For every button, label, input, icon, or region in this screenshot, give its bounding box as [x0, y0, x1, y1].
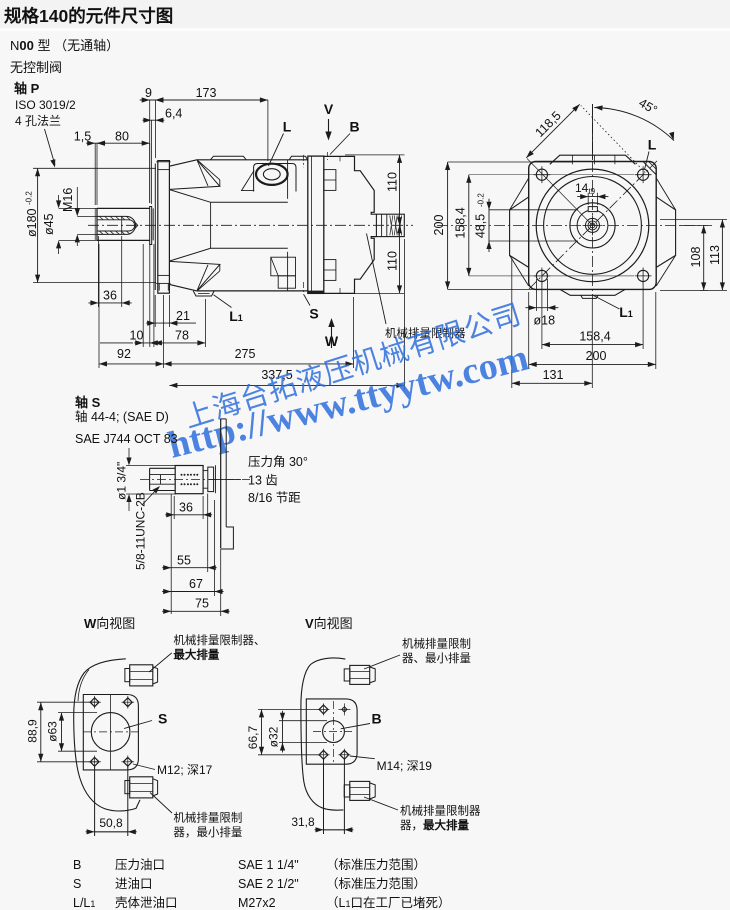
- svg-text:200: 200: [432, 215, 446, 236]
- svg-text:器、最小排量: 器、最小排量: [402, 651, 471, 665]
- svg-text:M12; 深17: M12; 深17: [157, 763, 213, 777]
- svg-text:压力角 30°: 压力角 30°: [248, 455, 308, 469]
- svg-text:（标准压力范围）: （标准压力范围）: [326, 877, 426, 891]
- svg-text:66,7: 66,7: [246, 725, 260, 749]
- svg-text:67: 67: [189, 577, 203, 591]
- svg-text:108: 108: [689, 247, 703, 268]
- svg-text:78: 78: [175, 329, 189, 343]
- svg-text:36: 36: [103, 289, 117, 303]
- svg-text:8/16 节距: 8/16 节距: [248, 491, 301, 505]
- svg-text:4 孔法兰: 4 孔法兰: [15, 114, 61, 128]
- svg-text:5/8-11UNC-2B: 5/8-11UNC-2B: [134, 492, 148, 570]
- svg-text:200: 200: [586, 349, 607, 363]
- svg-text:55: 55: [177, 554, 191, 568]
- svg-text:-0.2: -0.2: [25, 191, 34, 205]
- svg-text:80: 80: [115, 130, 129, 144]
- svg-text:器，最小排量: 器，最小排量: [173, 825, 242, 839]
- svg-text:S: S: [158, 711, 167, 727]
- svg-text:10: 10: [130, 329, 144, 343]
- svg-text:SAE 2 1/2": SAE 2 1/2": [238, 877, 299, 891]
- svg-text:21: 21: [176, 309, 190, 323]
- svg-text:9: 9: [145, 86, 152, 100]
- svg-text:规格140的元件尺寸图: 规格140的元件尺寸图: [4, 6, 173, 26]
- svg-text:ø18: ø18: [534, 314, 556, 328]
- svg-text:ø63: ø63: [46, 721, 60, 742]
- svg-text:W向视图: W向视图: [84, 616, 135, 631]
- svg-text:36: 36: [179, 501, 193, 515]
- svg-text:88,9: 88,9: [26, 719, 40, 743]
- svg-text:SAE J744 OCT 83: SAE J744 OCT 83: [75, 432, 178, 446]
- svg-text:最大排量: 最大排量: [173, 648, 219, 662]
- svg-text:机械排量限制器、: 机械排量限制器、: [173, 633, 265, 647]
- svg-text:M14; 深19: M14; 深19: [377, 759, 433, 773]
- svg-text:机械排量限制: 机械排量限制: [402, 637, 471, 651]
- svg-text:M27x2: M27x2: [238, 896, 276, 910]
- svg-text:48,5: 48,5: [474, 214, 488, 238]
- svg-text:275: 275: [235, 347, 256, 361]
- svg-text:L: L: [648, 137, 657, 153]
- svg-text:131: 131: [543, 368, 564, 382]
- svg-text:110: 110: [386, 172, 400, 192]
- svg-text:壳体泄油口: 壳体泄油口: [115, 896, 178, 910]
- svg-text:轴 S: 轴 S: [75, 395, 101, 410]
- svg-text:110: 110: [386, 251, 400, 271]
- svg-text:75: 75: [195, 597, 209, 611]
- svg-text:SAE 1 1/4": SAE 1 1/4": [238, 858, 299, 872]
- svg-text:机械排量限制器: 机械排量限制器: [400, 804, 481, 818]
- svg-text:158,4: 158,4: [579, 330, 610, 344]
- svg-text:-0.2: -0.2: [477, 193, 486, 207]
- svg-text:无控制阀: 无控制阀: [10, 60, 62, 75]
- svg-text:（标准压力范围）: （标准压力范围）: [326, 858, 426, 872]
- svg-text:31,8: 31,8: [291, 815, 315, 829]
- svg-text:轴 P: 轴 P: [14, 81, 40, 96]
- svg-text:轴 44-4; (SAE D): 轴 44-4; (SAE D): [75, 409, 169, 424]
- svg-text:50,8: 50,8: [99, 816, 123, 830]
- svg-text:机械排量限制: 机械排量限制: [173, 811, 242, 825]
- svg-text:N00 型 （无通轴）: N00 型 （无通轴）: [10, 38, 119, 53]
- svg-text:92: 92: [117, 347, 131, 361]
- svg-text:B: B: [349, 119, 359, 135]
- svg-text:173: 173: [196, 86, 217, 100]
- svg-text:6,4: 6,4: [165, 106, 182, 120]
- svg-text:M16: M16: [61, 188, 75, 212]
- svg-text:L/L1: L/L1: [73, 896, 95, 910]
- svg-text:V向视图: V向视图: [305, 616, 353, 631]
- svg-text:ø32: ø32: [267, 726, 281, 747]
- svg-text:ISO 3019/2: ISO 3019/2: [15, 98, 76, 112]
- svg-text:器，最大排量: 器，最大排量: [400, 818, 469, 832]
- svg-text:L: L: [283, 119, 292, 135]
- svg-text:S: S: [73, 877, 81, 891]
- svg-text:1,5: 1,5: [74, 130, 91, 144]
- svg-text:B: B: [372, 710, 382, 726]
- svg-text:13 齿: 13 齿: [248, 474, 278, 488]
- svg-text:V: V: [324, 101, 334, 117]
- svg-text:ø1 3/4": ø1 3/4": [115, 462, 129, 500]
- svg-text:压力油口: 压力油口: [115, 858, 165, 872]
- svg-text:S: S: [309, 306, 318, 322]
- svg-text:113: 113: [708, 245, 722, 265]
- svg-text:ø180: ø180: [25, 208, 39, 237]
- svg-text:ø45: ø45: [42, 213, 56, 235]
- svg-text:进油口: 进油口: [115, 877, 153, 891]
- svg-text:158,4: 158,4: [454, 207, 468, 238]
- svg-text:（L1口在工厂已堵死）: （L1口在工厂已堵死）: [326, 896, 450, 910]
- svg-text:B: B: [73, 858, 81, 872]
